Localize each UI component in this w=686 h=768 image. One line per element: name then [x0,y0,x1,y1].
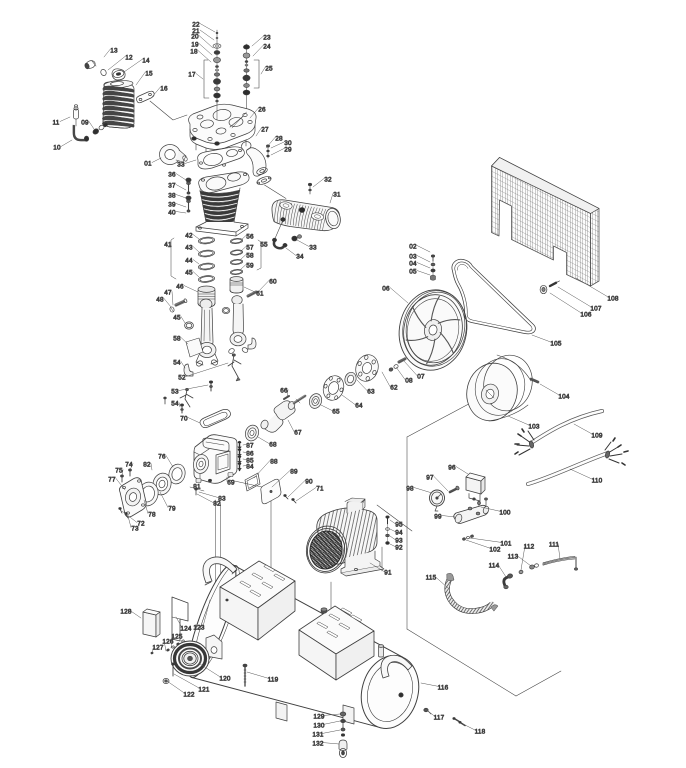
svg-text:116: 116 [438,685,449,692]
svg-text:92: 92 [395,545,403,552]
svg-text:59: 59 [246,263,254,270]
svg-text:24: 24 [263,44,271,51]
svg-text:15: 15 [145,71,153,78]
svg-text:58: 58 [246,253,254,260]
svg-text:112: 112 [524,544,535,551]
svg-text:128: 128 [120,609,132,616]
svg-text:57: 57 [246,245,254,252]
svg-text:114: 114 [489,563,500,570]
svg-text:73: 73 [131,526,139,533]
svg-text:102: 102 [489,547,501,554]
svg-text:01: 01 [144,161,152,168]
svg-text:58: 58 [173,336,181,343]
svg-text:54: 54 [171,401,179,408]
svg-text:119: 119 [268,677,279,684]
svg-text:132: 132 [312,741,324,748]
svg-text:84: 84 [246,464,254,471]
svg-text:100: 100 [499,510,511,517]
svg-text:127: 127 [152,645,164,652]
svg-text:81: 81 [193,484,201,491]
svg-text:46: 46 [176,284,184,291]
svg-text:96: 96 [448,465,456,472]
svg-text:117: 117 [434,715,445,722]
svg-text:33: 33 [177,162,185,169]
svg-text:130: 130 [313,723,325,730]
svg-text:113: 113 [508,554,519,561]
svg-text:115: 115 [426,575,437,582]
svg-text:122: 122 [183,692,195,699]
svg-text:90: 90 [305,479,313,486]
svg-text:129: 129 [313,714,325,721]
svg-text:62: 62 [390,385,398,392]
svg-text:61: 61 [256,291,264,298]
svg-text:28: 28 [275,136,283,143]
svg-text:91: 91 [384,570,392,577]
svg-text:56: 56 [246,234,254,241]
svg-text:98: 98 [406,486,414,493]
svg-text:86: 86 [246,451,254,458]
svg-text:53: 53 [171,389,179,396]
svg-text:44: 44 [185,258,193,265]
svg-text:13: 13 [110,48,118,55]
svg-text:64: 64 [355,403,363,410]
svg-text:78: 78 [148,512,156,519]
svg-text:43: 43 [185,245,193,252]
svg-text:32: 32 [324,177,332,184]
svg-text:27: 27 [261,127,269,134]
svg-text:106: 106 [580,312,592,319]
svg-text:103: 103 [528,424,540,431]
svg-text:33: 33 [309,245,317,252]
svg-text:124: 124 [180,626,192,633]
svg-text:06: 06 [382,286,390,293]
svg-text:14: 14 [142,58,150,65]
svg-text:02: 02 [409,244,417,251]
svg-text:118: 118 [475,729,486,736]
svg-text:89: 89 [290,469,298,476]
svg-text:104: 104 [558,394,570,401]
svg-text:45: 45 [173,315,181,322]
svg-text:88: 88 [270,459,278,466]
svg-text:66: 66 [280,388,288,395]
svg-text:65: 65 [332,409,340,416]
svg-text:121: 121 [198,687,210,694]
svg-text:39: 39 [168,202,176,209]
svg-text:26: 26 [258,107,266,114]
svg-text:03: 03 [409,254,417,261]
svg-text:107: 107 [590,306,602,313]
svg-text:105: 105 [550,341,562,348]
svg-text:120: 120 [219,676,231,683]
svg-text:87: 87 [246,443,254,450]
svg-text:31: 31 [333,192,341,199]
svg-text:82: 82 [213,501,221,508]
svg-text:42: 42 [185,233,193,240]
svg-text:12: 12 [125,55,133,62]
svg-text:37: 37 [168,183,176,190]
svg-text:109: 109 [591,433,603,440]
svg-text:19: 19 [191,42,199,49]
svg-text:40: 40 [168,210,176,217]
svg-text:67: 67 [294,430,302,437]
svg-text:82: 82 [143,462,151,469]
svg-text:11: 11 [52,120,59,127]
svg-text:75: 75 [115,468,123,475]
svg-text:69: 69 [227,480,235,487]
svg-text:60: 60 [269,279,277,286]
svg-text:07: 07 [417,374,425,381]
svg-text:34: 34 [296,254,304,261]
svg-text:99: 99 [434,514,442,521]
svg-text:18: 18 [190,49,198,56]
svg-text:71: 71 [316,486,324,493]
svg-text:97: 97 [426,475,434,482]
svg-text:47: 47 [164,290,172,297]
svg-text:48: 48 [156,297,164,304]
svg-text:16: 16 [160,86,168,93]
svg-text:110: 110 [592,478,603,485]
svg-text:68: 68 [269,442,277,449]
svg-text:25: 25 [265,66,273,73]
svg-text:52: 52 [178,375,186,382]
svg-text:55: 55 [260,242,268,249]
svg-text:29: 29 [284,147,292,154]
svg-text:38: 38 [168,193,176,200]
svg-text:77: 77 [108,477,116,484]
svg-text:04: 04 [409,261,417,268]
svg-text:10: 10 [53,145,61,152]
svg-text:17: 17 [188,72,196,79]
svg-text:74: 74 [125,462,133,469]
svg-text:54: 54 [173,360,181,367]
svg-text:20: 20 [191,34,199,41]
svg-text:131: 131 [312,732,324,739]
svg-text:09: 09 [81,120,89,127]
svg-text:36: 36 [168,172,176,179]
svg-text:94: 94 [395,530,403,537]
svg-text:79: 79 [168,506,176,513]
svg-text:23: 23 [263,35,271,42]
svg-text:126: 126 [162,639,174,646]
svg-text:101: 101 [500,541,512,548]
svg-text:123: 123 [193,625,205,632]
svg-text:08: 08 [405,378,413,385]
svg-text:108: 108 [607,296,619,303]
svg-text:93: 93 [395,538,403,545]
svg-text:76: 76 [158,454,166,461]
svg-text:70: 70 [180,416,188,423]
svg-text:95: 95 [395,522,403,529]
svg-text:111: 111 [549,542,560,549]
svg-text:05: 05 [409,269,417,276]
svg-text:45: 45 [185,270,193,277]
svg-text:63: 63 [367,389,375,396]
